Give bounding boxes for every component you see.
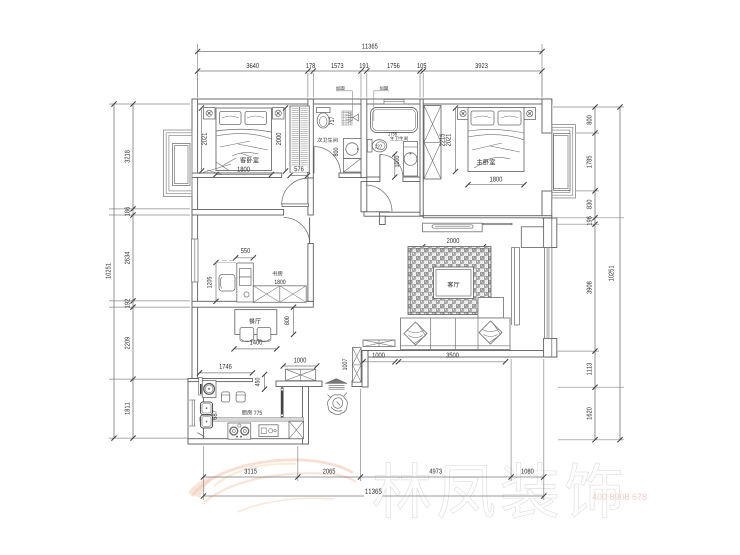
svg-text:400 8908 678: 400 8908 678: [592, 492, 647, 502]
